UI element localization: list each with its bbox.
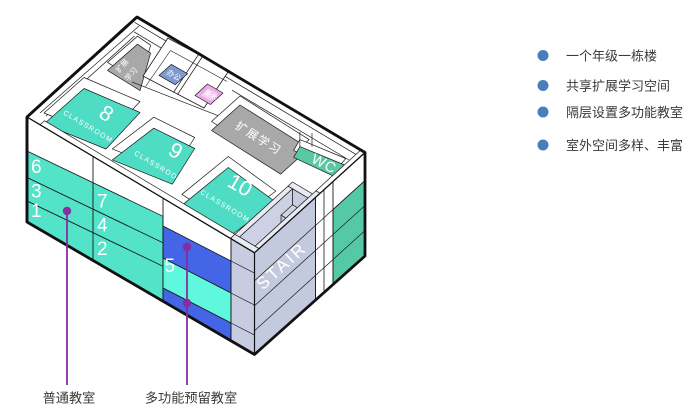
- svg-text:3: 3: [31, 182, 42, 203]
- svg-text:1: 1: [31, 201, 42, 222]
- svg-text:隔层设置多功能教室: 隔层设置多功能教室: [566, 105, 683, 120]
- svg-text:共享扩展学习空间: 共享扩展学习空间: [566, 78, 670, 93]
- svg-text:普通教室: 普通教室: [43, 390, 96, 406]
- svg-text:室外空间多样、丰富: 室外空间多样、丰富: [566, 138, 683, 153]
- svg-text:6: 6: [31, 157, 42, 178]
- svg-text:2: 2: [97, 239, 108, 260]
- svg-text:7: 7: [97, 192, 108, 213]
- svg-text:一个年级一栋楼: 一个年级一栋楼: [566, 48, 657, 63]
- svg-text:4: 4: [97, 216, 108, 237]
- svg-text:多功能预留教室: 多功能预留教室: [145, 390, 237, 406]
- svg-text:5: 5: [165, 256, 176, 277]
